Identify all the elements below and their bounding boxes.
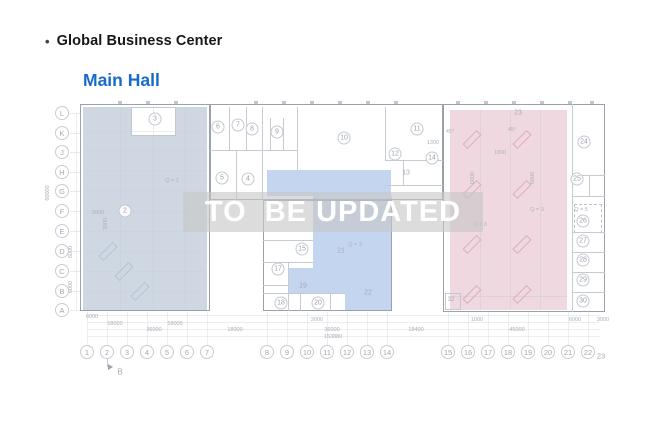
row-label-J: J bbox=[55, 145, 69, 159]
ln bbox=[229, 107, 230, 150]
row-label-G: G bbox=[55, 184, 69, 198]
watermark-text: TO BE UPDATED bbox=[205, 196, 461, 229]
dim: 2000 bbox=[311, 317, 323, 323]
ln bbox=[83, 190, 207, 191]
axis-leader bbox=[167, 312, 168, 345]
ann: Q = 3 bbox=[530, 207, 544, 213]
axis-leader bbox=[127, 312, 128, 345]
axis-leader bbox=[387, 312, 388, 345]
axis-leader bbox=[568, 312, 569, 345]
ln bbox=[385, 185, 443, 186]
room-label-21: 21 bbox=[337, 248, 345, 255]
col-label-14: 14 bbox=[380, 345, 394, 359]
ln bbox=[572, 232, 605, 233]
section-marker-arrow bbox=[108, 364, 113, 370]
axis-leader bbox=[207, 312, 208, 345]
ln bbox=[288, 262, 289, 311]
room-label-4: 4 bbox=[242, 173, 255, 186]
ln bbox=[83, 150, 207, 151]
axis-leader bbox=[448, 312, 449, 345]
tick bbox=[338, 101, 342, 104]
row-label-H: H bbox=[55, 165, 69, 179]
axis-leader bbox=[588, 312, 589, 345]
ann: 1800 bbox=[494, 150, 506, 156]
axis-leader bbox=[107, 312, 108, 345]
ann: 2000 bbox=[92, 210, 104, 216]
axis-leader bbox=[347, 312, 348, 345]
room-label-22: 22 bbox=[364, 290, 372, 297]
room-label-2: 2 bbox=[119, 205, 132, 218]
row-label-F: F bbox=[55, 204, 69, 218]
dim: 3000 bbox=[597, 317, 609, 323]
ln bbox=[572, 292, 605, 293]
axis-leader bbox=[307, 312, 308, 345]
watermark-band: TO BE UPDATED bbox=[183, 192, 483, 232]
ln bbox=[300, 293, 301, 311]
ann: Q = 3 bbox=[165, 178, 179, 184]
ann: 45° bbox=[446, 129, 454, 135]
axis-leader bbox=[70, 191, 80, 192]
ln bbox=[87, 315, 600, 316]
tick bbox=[174, 101, 178, 104]
room-label-10: 10 bbox=[338, 132, 351, 145]
ann: 3000 bbox=[103, 218, 109, 230]
ln bbox=[87, 322, 600, 323]
col-label-2: 2 bbox=[100, 345, 114, 359]
dim: 45000 bbox=[509, 327, 524, 333]
room-label-3: 3 bbox=[149, 113, 162, 126]
col-label-8: 8 bbox=[260, 345, 274, 359]
ann: 6000 bbox=[470, 172, 476, 184]
ln bbox=[330, 293, 331, 311]
room-label-8: 8 bbox=[246, 123, 259, 136]
ann: 45° bbox=[508, 127, 516, 133]
dim: 6000 bbox=[569, 317, 581, 323]
col-label-12: 12 bbox=[340, 345, 354, 359]
tick bbox=[590, 101, 594, 104]
ln bbox=[83, 170, 207, 171]
ln bbox=[510, 110, 511, 310]
ln bbox=[262, 107, 263, 200]
room-label-19: 19 bbox=[299, 283, 307, 290]
axis-leader bbox=[70, 251, 80, 252]
axis-leader bbox=[147, 312, 148, 345]
room-label-5: 5 bbox=[216, 172, 229, 185]
row-label-K: K bbox=[55, 126, 69, 140]
room-label-15: 15 bbox=[296, 243, 309, 256]
axis-leader bbox=[70, 113, 80, 114]
axis-leader bbox=[70, 152, 80, 153]
col-label-9: 9 bbox=[280, 345, 294, 359]
axis-leader bbox=[70, 172, 80, 173]
room-label-17: 17 bbox=[272, 263, 285, 276]
col-label-23: 23 bbox=[597, 352, 605, 361]
dim: 18000 bbox=[167, 321, 182, 327]
col-label-21: 21 bbox=[561, 345, 575, 359]
ln bbox=[210, 150, 297, 151]
dim: 18000 bbox=[227, 327, 242, 333]
ln bbox=[385, 107, 386, 160]
room-label-29: 29 bbox=[577, 274, 590, 287]
col-label-5: 5 bbox=[160, 345, 174, 359]
col-label-17: 17 bbox=[481, 345, 495, 359]
room-label-25: 25 bbox=[571, 173, 584, 186]
axis-leader bbox=[70, 133, 80, 134]
room-label-23: 23 bbox=[514, 110, 522, 117]
axis-leader bbox=[70, 211, 80, 212]
ln bbox=[83, 131, 207, 132]
col-label-15: 15 bbox=[441, 345, 455, 359]
ln bbox=[263, 285, 288, 286]
col-label-19: 19 bbox=[521, 345, 535, 359]
screen: • Global Business Center Main Hall 23546… bbox=[0, 0, 660, 440]
section-marker-letter: B bbox=[117, 368, 122, 377]
tick bbox=[394, 101, 398, 104]
dim: 18000 bbox=[107, 321, 122, 327]
room-label-26: 26 bbox=[577, 215, 590, 228]
room-label-18: 18 bbox=[275, 297, 288, 310]
col-label-22: 22 bbox=[581, 345, 595, 359]
tick bbox=[254, 101, 258, 104]
axis-leader bbox=[468, 312, 469, 345]
dim: 18400 bbox=[408, 327, 423, 333]
col-label-10: 10 bbox=[300, 345, 314, 359]
row-label-D: D bbox=[55, 244, 69, 258]
row-label-L: L bbox=[55, 106, 69, 120]
tick bbox=[484, 101, 488, 104]
row-label-B: B bbox=[55, 284, 69, 298]
tick bbox=[540, 101, 544, 104]
ln bbox=[572, 272, 605, 273]
col-label-11: 11 bbox=[320, 345, 334, 359]
ann: Q = 5 bbox=[574, 207, 588, 213]
room-label-7: 7 bbox=[232, 119, 245, 132]
room-label-30: 30 bbox=[577, 295, 590, 308]
row-label-A: A bbox=[55, 303, 69, 317]
axis-leader bbox=[70, 271, 80, 272]
ann: 6000 bbox=[530, 172, 536, 184]
ann: 1300 bbox=[427, 140, 439, 146]
tick bbox=[310, 101, 314, 104]
col-label-18: 18 bbox=[501, 345, 515, 359]
axis-leader bbox=[327, 312, 328, 345]
col-label-6: 6 bbox=[180, 345, 194, 359]
ln bbox=[263, 240, 313, 241]
axis-leader bbox=[267, 312, 268, 345]
axis-leader bbox=[548, 312, 549, 345]
room-label-12: 12 bbox=[389, 148, 402, 161]
col-label-3: 3 bbox=[120, 345, 134, 359]
ln bbox=[263, 293, 345, 294]
row-label-C: C bbox=[55, 264, 69, 278]
tick bbox=[366, 101, 370, 104]
room-label-14: 14 bbox=[426, 152, 439, 165]
ln bbox=[83, 271, 207, 272]
ln bbox=[589, 175, 590, 196]
tick bbox=[512, 101, 516, 104]
axis-leader bbox=[70, 231, 80, 232]
tick bbox=[568, 101, 572, 104]
col-label-20: 20 bbox=[541, 345, 555, 359]
tick bbox=[282, 101, 286, 104]
ln bbox=[572, 196, 605, 197]
axis-leader bbox=[508, 312, 509, 345]
col-label-13: 13 bbox=[360, 345, 374, 359]
col-label-4: 4 bbox=[140, 345, 154, 359]
room-label-27: 27 bbox=[577, 235, 590, 248]
tick bbox=[146, 101, 150, 104]
axis-leader bbox=[87, 312, 88, 345]
dim: 36000 bbox=[146, 327, 161, 333]
dim: 60000 bbox=[45, 185, 51, 200]
axis-leader bbox=[70, 310, 80, 311]
tick bbox=[118, 101, 122, 104]
room-label-32: 32 bbox=[448, 297, 455, 303]
axis-leader bbox=[488, 312, 489, 345]
col-label-7: 7 bbox=[200, 345, 214, 359]
room-label-24: 24 bbox=[578, 136, 591, 149]
ann: Q = 3 bbox=[348, 242, 362, 248]
ln bbox=[87, 336, 600, 337]
room-label-11: 11 bbox=[411, 123, 424, 136]
axis-leader bbox=[287, 312, 288, 345]
tick bbox=[456, 101, 460, 104]
ln bbox=[153, 107, 154, 310]
room-label-6: 6 bbox=[212, 121, 225, 134]
row-label-E: E bbox=[55, 224, 69, 238]
col-label-1: 1 bbox=[80, 345, 94, 359]
axis-leader bbox=[70, 291, 80, 292]
ln bbox=[297, 107, 298, 170]
col-label-16: 16 bbox=[461, 345, 475, 359]
room-label-20: 20 bbox=[312, 297, 325, 310]
room-label-28: 28 bbox=[577, 254, 590, 267]
axis-leader bbox=[367, 312, 368, 345]
dim: 1000 bbox=[471, 317, 483, 323]
room-label-9: 9 bbox=[271, 126, 284, 139]
ln bbox=[572, 104, 573, 312]
ln bbox=[572, 252, 605, 253]
room-label-13: 13 bbox=[402, 170, 410, 177]
axis-leader bbox=[187, 312, 188, 345]
axis-leader bbox=[528, 312, 529, 345]
